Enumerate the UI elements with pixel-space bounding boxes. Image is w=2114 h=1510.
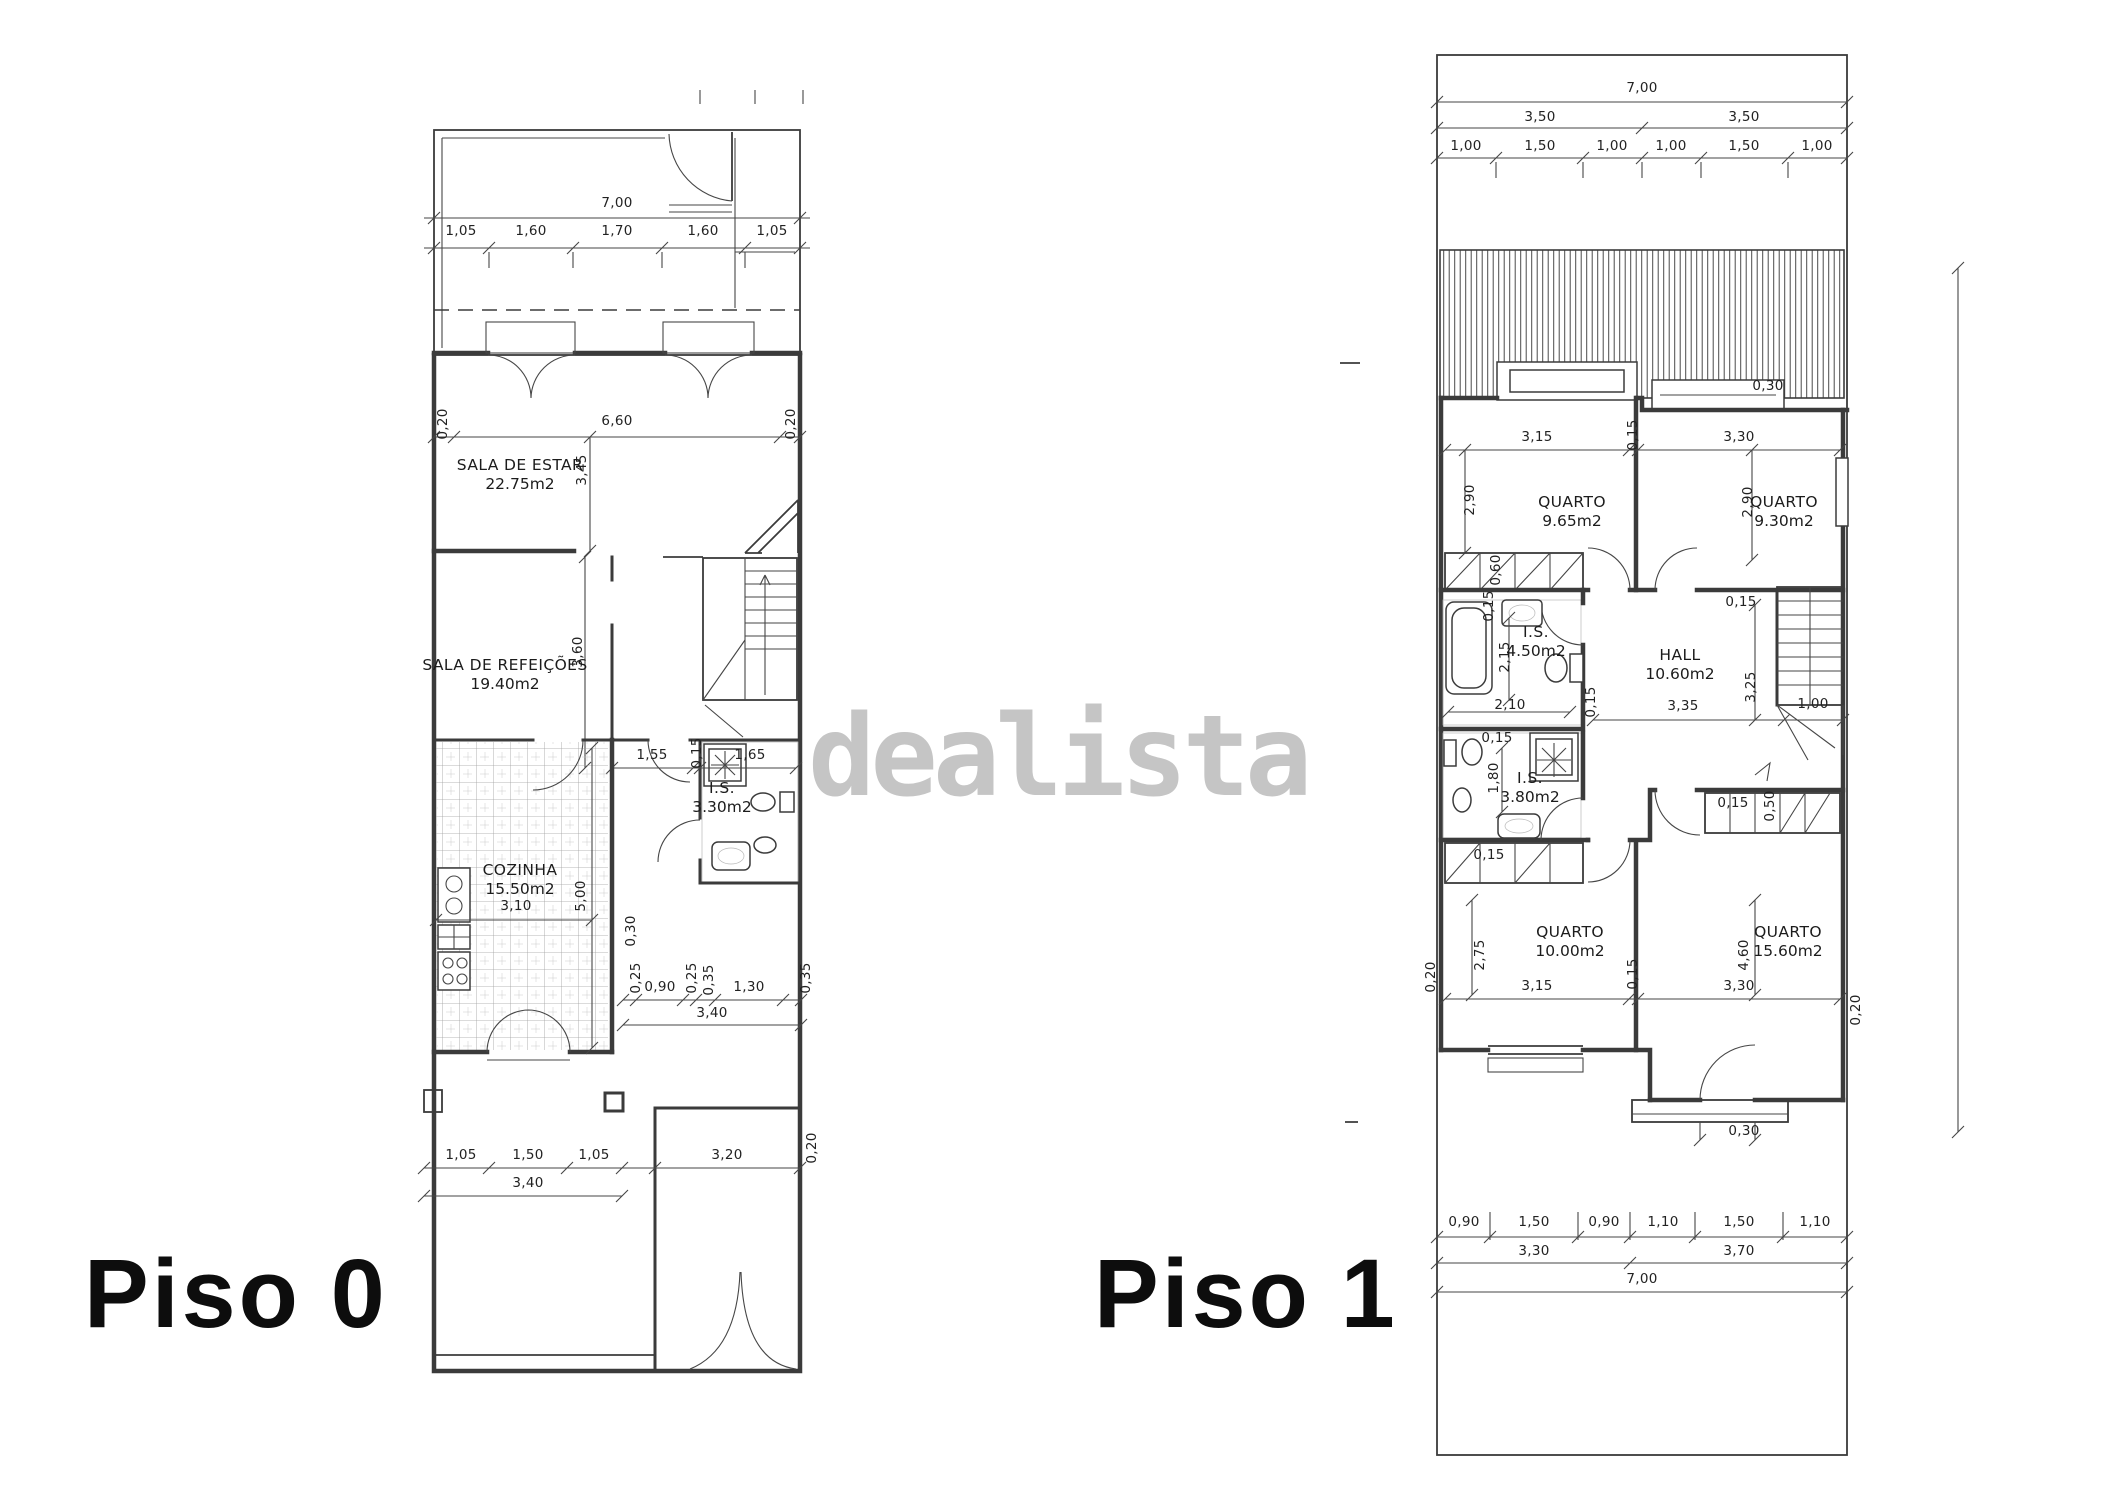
dimension-label: 3,15: [1521, 978, 1552, 994]
dimension-label: 3,30: [1723, 429, 1754, 445]
room-name: SALA DE REFEIÇÕES: [422, 656, 587, 674]
dimension-label: 0,20: [435, 408, 451, 439]
floor1-title: Piso 1: [1094, 1238, 1398, 1350]
room-area: 15.60m2: [1753, 942, 1822, 960]
room-label: QUARTO10.00m2: [1535, 922, 1604, 960]
dimension-label: 3,40: [696, 1005, 727, 1021]
room-area: 10.60m2: [1645, 665, 1714, 683]
room-area: 3.30m2: [692, 798, 751, 816]
dimension-label: 3,30: [1518, 1243, 1549, 1259]
dimension-label: 1,00: [1801, 138, 1832, 154]
dimension-label: 7,00: [1626, 1271, 1657, 1287]
dimension-label: 1,55: [636, 747, 667, 763]
dimension-label: 1,00: [1655, 138, 1686, 154]
dimension-label: 1,05: [445, 223, 476, 239]
room-name: I.S.: [1523, 623, 1549, 641]
dimension-label: 4,60: [1736, 939, 1752, 970]
dimension-label: 1,30: [733, 979, 764, 995]
room-name: QUARTO: [1754, 923, 1822, 941]
dimension-label: 0,15: [1625, 958, 1641, 989]
dimension-label: 0,20: [783, 408, 799, 439]
room-area: 9.65m2: [1542, 512, 1601, 530]
room-label: SALA DE ESTAR22.75m2: [457, 455, 583, 493]
dimension-label: 0,25: [684, 962, 700, 993]
dimension-label: 1,65: [734, 747, 765, 763]
room-label: I.S.3.30m2: [692, 778, 751, 816]
floor0-title: Piso 0: [84, 1238, 388, 1350]
room-name: COZINHA: [483, 861, 558, 879]
dimension-label: 3,20: [711, 1147, 742, 1163]
room-label: I.S.4.50m2: [1506, 622, 1565, 660]
room-area: 3.80m2: [1500, 788, 1559, 806]
room-area: 4.50m2: [1506, 642, 1565, 660]
dimension-label: 0,15: [1583, 686, 1599, 717]
room-area: 10.00m2: [1535, 942, 1604, 960]
piso1-plan: [1340, 55, 1964, 1455]
room-name: QUARTO: [1750, 493, 1818, 511]
room-label: I.S.3.80m2: [1500, 768, 1559, 806]
dimension-label: 2,90: [1462, 484, 1478, 515]
dimension-label: 3,10: [500, 898, 531, 914]
dimension-label: 0,15: [1481, 590, 1497, 621]
dimension-label: 1,50: [1518, 1214, 1549, 1230]
dimension-label: 1,50: [1723, 1214, 1754, 1230]
dimension-label: 3,40: [512, 1175, 543, 1191]
dimension-label: 3,50: [1728, 109, 1759, 125]
dimension-label: 2,75: [1472, 939, 1488, 970]
room-label: HALL10.60m2: [1645, 645, 1714, 683]
dimension-label: 1,50: [512, 1147, 543, 1163]
dimension-label: 1,10: [1647, 1214, 1678, 1230]
dimension-label: 0,20: [1423, 961, 1439, 992]
room-name: SALA DE ESTAR: [457, 456, 583, 474]
dimension-label: 0,30: [623, 915, 639, 946]
dimension-label: 0,90: [1448, 1214, 1479, 1230]
dimension-label: 1,50: [1728, 138, 1759, 154]
dimension-label: 0,30: [1728, 1123, 1759, 1139]
room-name: I.S.: [709, 779, 735, 797]
room-area: 15.50m2: [485, 880, 554, 898]
dimension-label: 1,60: [687, 223, 718, 239]
dimension-label: 3,35: [1667, 698, 1698, 714]
room-label: QUARTO9.65m2: [1538, 492, 1606, 530]
room-area: 9.30m2: [1754, 512, 1813, 530]
dimension-label: 0,20: [804, 1132, 820, 1163]
room-label: QUARTO9.30m2: [1750, 492, 1818, 530]
dimension-label: 1,10: [1799, 1214, 1830, 1230]
dimension-label: 1,60: [515, 223, 546, 239]
dimension-label: 0,35: [798, 962, 814, 993]
dimension-label: 0,15: [1625, 419, 1641, 450]
dimension-label: 6,60: [601, 413, 632, 429]
room-label: QUARTO15.60m2: [1753, 922, 1822, 960]
room-area: 19.40m2: [470, 675, 539, 693]
room-name: QUARTO: [1538, 493, 1606, 511]
dimension-label: 1,05: [445, 1147, 476, 1163]
room-label: COZINHA15.50m2: [483, 860, 558, 898]
dimension-label: 0,90: [644, 979, 675, 995]
dimension-label: 3,70: [1723, 1243, 1754, 1259]
dimension-label: 1,05: [578, 1147, 609, 1163]
dimension-label: 3,25: [1743, 671, 1759, 702]
room-name: HALL: [1659, 646, 1700, 664]
dimension-label: 5,00: [573, 880, 589, 911]
dimension-label: 0,35: [701, 964, 717, 995]
dimension-label: 0,30: [1752, 378, 1783, 394]
dimension-label: 1,00: [1450, 138, 1481, 154]
dimension-label: 2,10: [1494, 697, 1525, 713]
dimension-label: 3,50: [1524, 109, 1555, 125]
dimension-label: 1,70: [601, 223, 632, 239]
dimension-label: 0,90: [1588, 1214, 1619, 1230]
room-name: QUARTO: [1536, 923, 1604, 941]
dimension-label: 0,60: [1488, 554, 1504, 585]
dimension-label: 1,50: [1524, 138, 1555, 154]
dimension-label: 0,20: [1848, 994, 1864, 1025]
dimension-label: 0,25: [628, 962, 644, 993]
piso0-plan: [418, 90, 810, 1371]
watermark: dealista: [808, 692, 1307, 822]
dimension-label: 1,05: [756, 223, 787, 239]
dimension-label: 0,15: [689, 737, 705, 768]
room-area: 22.75m2: [485, 475, 554, 493]
dimension-label: 7,00: [601, 195, 632, 211]
dimension-label: 3,15: [1521, 429, 1552, 445]
dimension-label: 1,00: [1797, 696, 1828, 712]
dimension-label: 0,15: [1481, 730, 1512, 746]
dimension-label: 0,15: [1725, 594, 1756, 610]
room-label: SALA DE REFEIÇÕES19.40m2: [422, 655, 587, 693]
dimension-label: 3,30: [1723, 978, 1754, 994]
dimension-label: 0,50: [1762, 790, 1778, 821]
room-name: I.S.: [1517, 769, 1543, 787]
floorplan-page: 7,001,051,601,701,601,056,600,200,203,45…: [0, 0, 2114, 1510]
dimension-label: 7,00: [1626, 80, 1657, 96]
dimension-label: 1,00: [1596, 138, 1627, 154]
dimension-label: 0,15: [1473, 847, 1504, 863]
dimension-label: 0,15: [1717, 795, 1748, 811]
